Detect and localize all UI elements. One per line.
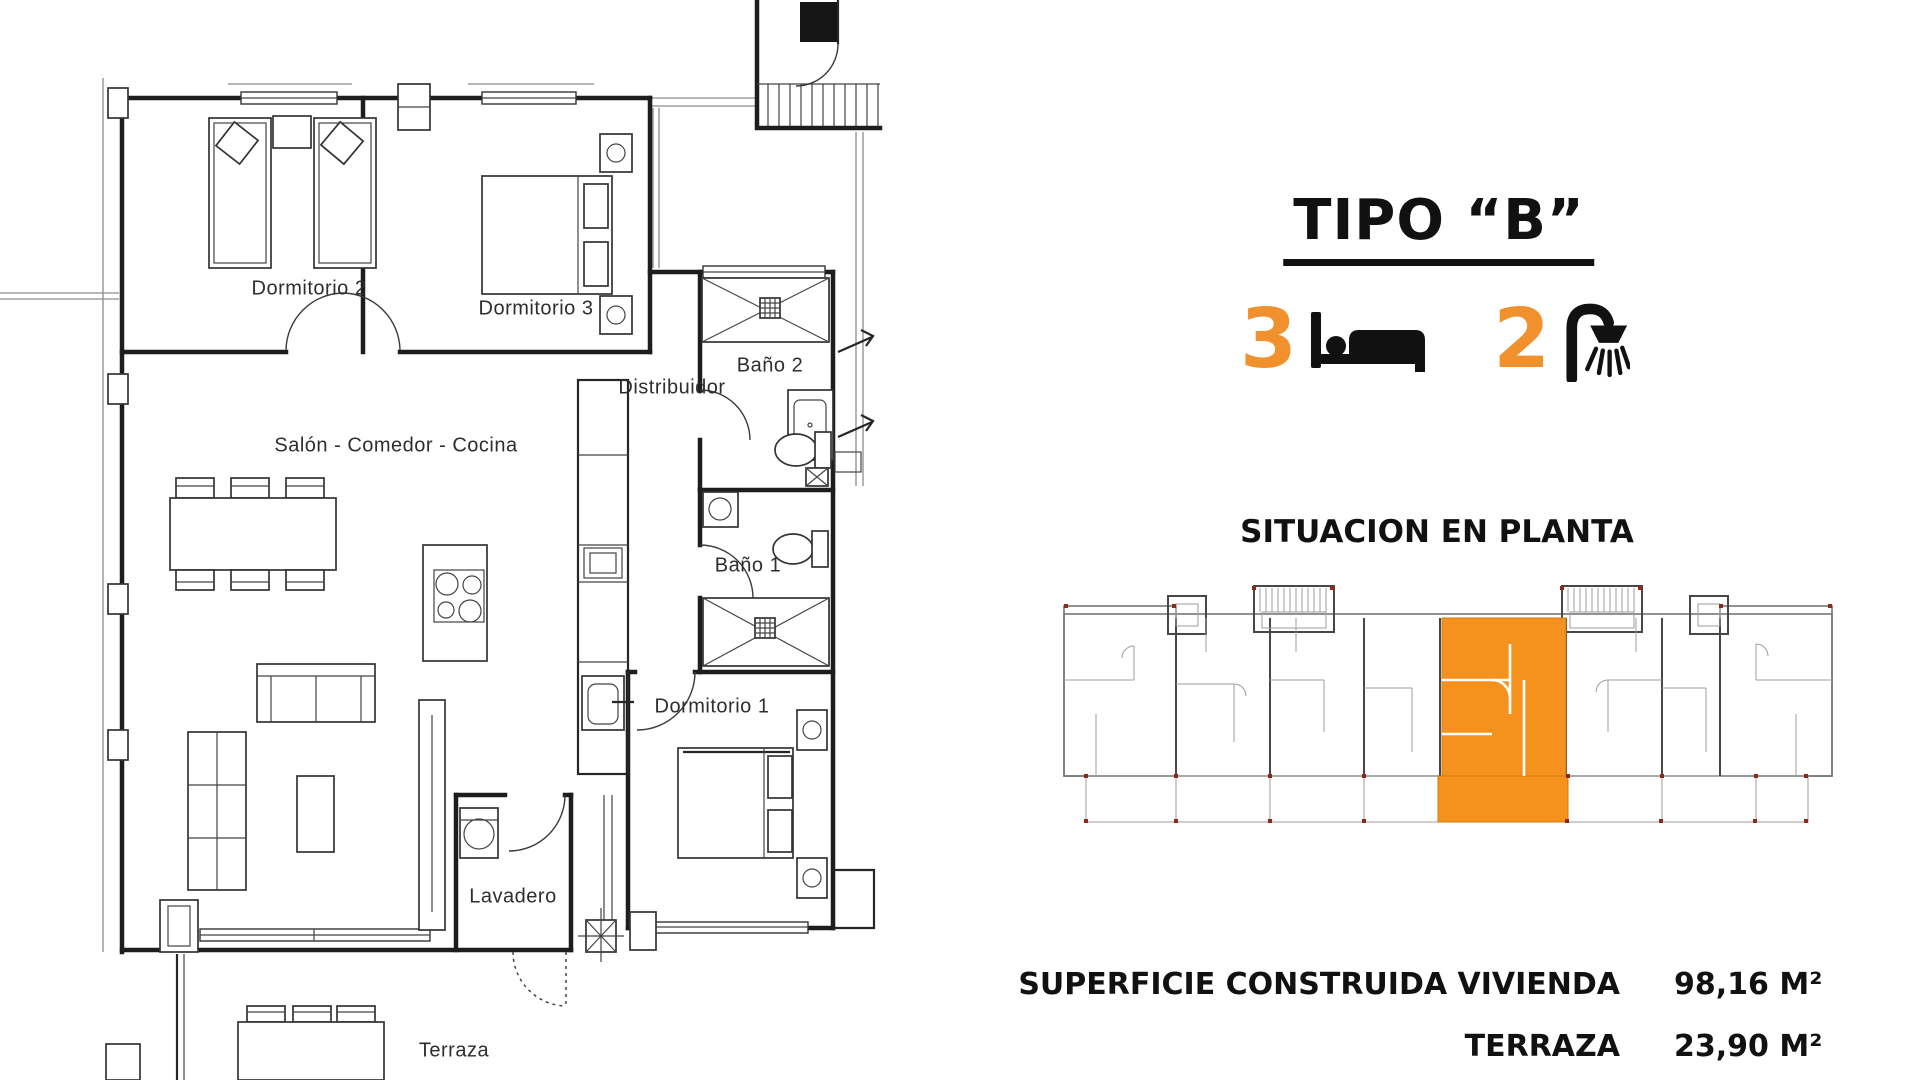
- area-row-vivienda-label: SUPERFICIE CONSTRUIDA VIVIENDA: [1018, 967, 1620, 1002]
- highlighted-unit: [1442, 618, 1566, 776]
- area-row-terraza-label: TERRAZA: [1465, 1029, 1620, 1064]
- room-label-dormitorio1: Dormitorio 1: [655, 696, 770, 719]
- room-label-salon: Salón - Comedor - Cocina: [274, 435, 517, 458]
- page: Dormitorio 2 Dormitorio 3 Baño 2 Distrib…: [0, 0, 1920, 1080]
- shower-icon: [1564, 298, 1630, 382]
- bedrooms-count: 3: [1240, 299, 1297, 381]
- area-row-terraza-value: 23,90 M²: [1674, 1029, 1822, 1064]
- situation-title: SITUACION EN PLANTA: [1240, 514, 1634, 550]
- site-plan-drawing: [1056, 582, 1840, 830]
- page-title: TIPO “B”: [1283, 188, 1594, 266]
- highlighted-unit-terrace: [1438, 776, 1568, 822]
- room-label-bano1: Baño 1: [715, 555, 781, 578]
- room-label-lavadero: Lavadero: [469, 886, 556, 909]
- room-label-terraza: Terraza: [419, 1040, 489, 1063]
- room-label-bano2: Baño 2: [737, 355, 803, 378]
- rooms-summary: 3 2: [1240, 294, 1630, 386]
- room-label-distribuidor: Distribuidor: [618, 377, 725, 400]
- floor-plan-drawing: [0, 0, 900, 1080]
- bathrooms-count: 2: [1493, 299, 1550, 381]
- room-label-dormitorio2: Dormitorio 2: [252, 278, 367, 301]
- area-row-vivienda-value: 98,16 M²: [1674, 967, 1822, 1002]
- room-label-dormitorio3: Dormitorio 3: [479, 298, 594, 321]
- bed-icon: [1309, 308, 1429, 372]
